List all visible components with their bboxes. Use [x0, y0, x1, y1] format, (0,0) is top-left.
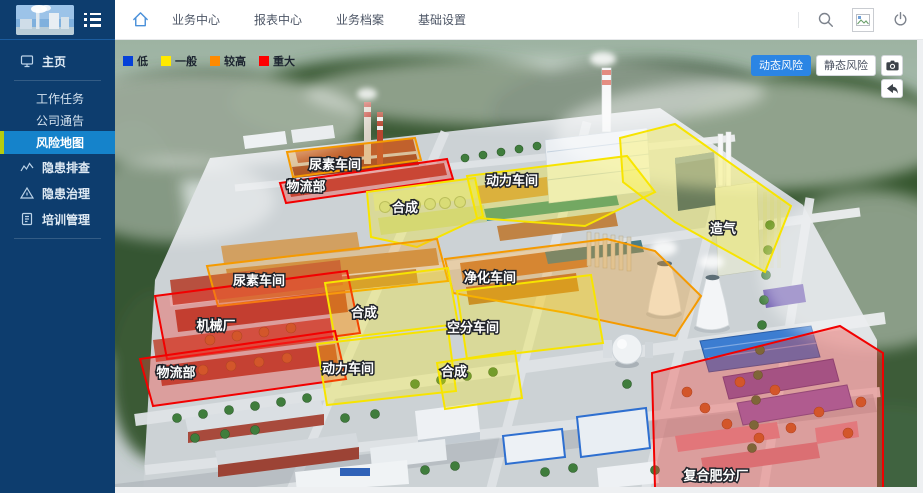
zone-label-logistics-dept-top: 物流部 [286, 179, 325, 195]
legend-swatch [161, 56, 171, 66]
avatar-broken-image[interactable] [852, 8, 874, 32]
static-risk-button[interactable]: 静态风险 [816, 55, 876, 76]
camera-icon [886, 60, 899, 71]
legend-label: 重大 [273, 53, 295, 69]
topbar-divider [798, 12, 799, 28]
company-logo [16, 5, 74, 35]
legend-item-3: 重大 [259, 53, 295, 69]
topbar: 业务中心报表中心业务档案基础设置 [115, 0, 923, 40]
screenshot-button[interactable] [881, 55, 903, 76]
sidebar-item-training-management[interactable]: 培训管理 [0, 206, 115, 232]
sidebar-item-label: 工作任务 [36, 90, 84, 107]
sidebar-item-label: 隐患排查 [42, 159, 90, 176]
sidebar-item-company-notice[interactable]: 公司通告 [0, 109, 115, 131]
zone-label-logistics-dept-bottom: 物流部 [156, 365, 195, 381]
dynamic-risk-button[interactable]: 动态风险 [751, 55, 811, 76]
legend-swatch [123, 56, 133, 66]
home-icon [20, 54, 34, 68]
sidebar-item-label: 培训管理 [42, 211, 90, 228]
nav-basic-settings[interactable]: 基础设置 [418, 11, 466, 28]
legend-label: 一般 [175, 53, 197, 69]
chart-icon [20, 160, 34, 174]
sidebar-divider [14, 238, 101, 239]
sidebar-item-work-tasks[interactable]: 工作任务 [0, 87, 115, 109]
zone-label-urea-workshop-mid: 尿素车间 [233, 273, 285, 289]
search-icon[interactable] [817, 11, 834, 28]
map-bottom-gutter [115, 487, 923, 493]
legend-swatch [210, 56, 220, 66]
sidebar-item-label: 主页 [42, 53, 66, 70]
legend-swatch [259, 56, 269, 66]
topbar-actions [798, 8, 909, 32]
plant-aerial-scene: 尿素车间物流部合成动力车间造气尿素车间净化车间机械厂合成空分车间物流部动力车间合… [115, 40, 923, 493]
legend-item-0: 低 [123, 53, 148, 69]
nav-business-archives[interactable]: 业务档案 [336, 11, 384, 28]
zone-label-machinery-factory: 机械厂 [196, 318, 235, 334]
sidebar-divider [14, 80, 101, 81]
sidebar-nav: 主页工作任务公司通告风险地图隐患排查隐患治理培训管理 [0, 40, 115, 239]
risk-legend: 低一般较高重大 [123, 53, 295, 69]
legend-item-2: 较高 [210, 53, 246, 69]
zone-label-urea-workshop-top: 尿素车间 [309, 157, 361, 173]
sidebar-item-risk-map[interactable]: 风险地图 [0, 131, 115, 154]
sidebar-item-label: 隐患治理 [42, 185, 90, 202]
power-icon[interactable] [892, 11, 909, 28]
sidebar-item-label: 风险地图 [36, 134, 84, 151]
legend-label: 低 [137, 53, 148, 69]
map-right-gutter [917, 40, 923, 493]
zone-label-synthesis-top: 合成 [392, 200, 418, 216]
nav-report-center[interactable]: 报表中心 [254, 11, 302, 28]
risk-map-app: 主页工作任务公司通告风险地图隐患排查隐患治理培训管理 业务中心报表中心业务档案基… [0, 0, 923, 493]
sidebar: 主页工作任务公司通告风险地图隐患排查隐患治理培训管理 [0, 0, 115, 493]
zone-label-power-workshop-top: 动力车间 [486, 173, 538, 189]
home-icon[interactable] [131, 10, 150, 29]
zone-label-synthesis-bottom: 合成 [441, 364, 467, 380]
zone-air-separation-workshop[interactable] [457, 275, 603, 359]
sidebar-header [0, 0, 115, 40]
sidebar-item-hazard-inspection[interactable]: 隐患排查 [0, 154, 115, 180]
map-controls: 动态风险 静态风险 [751, 55, 903, 76]
risk-map-canvas[interactable]: 尿素车间物流部合成动力车间造气尿素车间净化车间机械厂合成空分车间物流部动力车间合… [115, 40, 923, 493]
back-button[interactable] [881, 79, 903, 98]
sidebar-item-hazard-treatment[interactable]: 隐患治理 [0, 180, 115, 206]
zone-label-gas-generation: 造气 [710, 221, 736, 237]
zone-label-synthesis-mid: 合成 [351, 305, 377, 321]
sidebar-item-label: 公司通告 [36, 112, 84, 129]
main-nav: 业务中心报表中心业务档案基础设置 [172, 11, 466, 28]
legend-label: 较高 [224, 53, 246, 69]
nav-business-center[interactable]: 业务中心 [172, 11, 220, 28]
alert-triangle-icon [20, 186, 34, 200]
book-icon [20, 212, 34, 226]
zone-label-air-separation-workshop: 空分车间 [447, 320, 499, 336]
sidebar-item-home[interactable]: 主页 [0, 48, 115, 74]
zone-label-power-workshop-bottom: 动力车间 [322, 361, 374, 377]
zone-label-compound-fertilizer-plant: 复合肥分厂 [682, 468, 748, 484]
legend-item-1: 一般 [161, 53, 197, 69]
back-arrow-icon [886, 83, 899, 95]
zone-label-purification-workshop: 净化车间 [464, 270, 516, 286]
menu-toggle-icon[interactable] [84, 13, 102, 27]
